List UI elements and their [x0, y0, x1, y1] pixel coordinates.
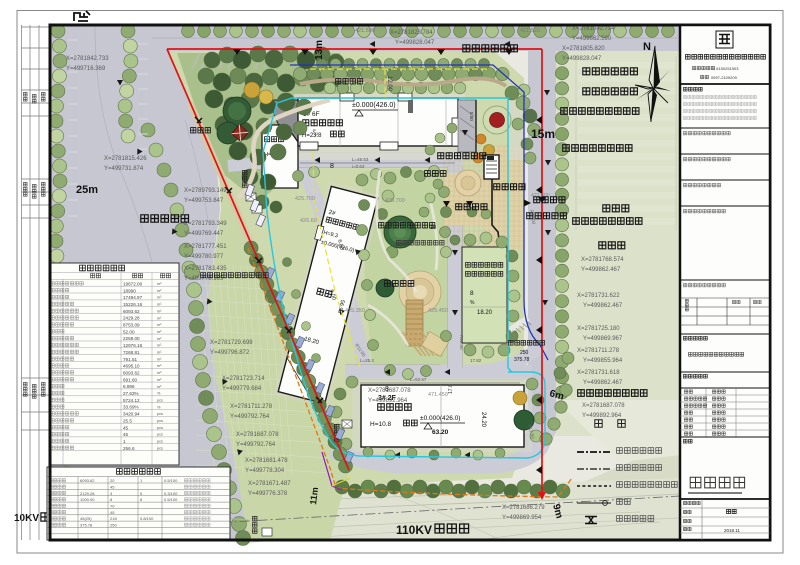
svg-text:L=52.57: L=52.57 — [410, 377, 427, 382]
svg-text:m²: m² — [157, 303, 162, 307]
svg-text:X=2781711.278: X=2781711.278 — [577, 348, 620, 354]
svg-text:m²: m² — [157, 385, 162, 389]
svg-text:X=2781815.426: X=2781815.426 — [104, 156, 147, 162]
svg-text:18990: 18990 — [123, 288, 136, 293]
svg-text:471.450: 471.450 — [428, 392, 448, 398]
svg-text:0.5/100: 0.5/100 — [164, 497, 178, 502]
svg-text:12976.16: 12976.16 — [123, 343, 143, 348]
svg-text:2018.11: 2018.11 — [724, 528, 740, 533]
svg-text:421.500: 421.500 — [355, 28, 375, 34]
svg-text:X=2781723.714: X=2781723.714 — [222, 376, 265, 382]
svg-text:m²: m² — [157, 323, 162, 327]
svg-text:Y=499778.304: Y=499778.304 — [245, 468, 285, 474]
svg-text:791.51: 791.51 — [123, 357, 137, 362]
svg-text:7268.81: 7268.81 — [123, 350, 140, 355]
svg-text:5.00: 5.00 — [469, 112, 474, 121]
svg-text:8: 8 — [470, 290, 474, 297]
svg-text:pcs: pcs — [157, 446, 163, 450]
svg-text:Y=499792.764: Y=499792.764 — [236, 442, 276, 448]
svg-text:2429.28: 2429.28 — [123, 316, 140, 321]
svg-text:N: N — [643, 41, 651, 53]
svg-text:X=2781711.278: X=2781711.278 — [230, 404, 273, 410]
svg-text:Y=499862.467: Y=499862.467 — [583, 303, 623, 309]
svg-text:Y=499780.977: Y=499780.977 — [184, 254, 224, 260]
svg-text:Y=499862.467: Y=499862.467 — [581, 267, 621, 273]
svg-text:L=46.53: L=46.53 — [352, 157, 369, 162]
svg-text:2258.00: 2258.00 — [123, 336, 140, 341]
svg-text:pcs: pcs — [157, 412, 163, 416]
svg-text:m²: m² — [157, 296, 162, 300]
svg-text:m²: m² — [157, 371, 162, 375]
svg-text:Y=499862.467: Y=499862.467 — [583, 380, 623, 386]
svg-text:15m: 15m — [531, 127, 555, 141]
svg-text:8: 8 — [385, 386, 389, 393]
svg-text:15226.16: 15226.16 — [123, 302, 143, 307]
svg-text:27.63%: 27.63% — [123, 391, 139, 396]
svg-text:6093.62: 6093.62 — [123, 370, 140, 375]
svg-text:12.00: 12.00 — [386, 76, 392, 92]
svg-text:17.0: 17.0 — [448, 384, 454, 394]
svg-text:425.350: 425.350 — [345, 308, 365, 314]
svg-text:1000.00: 1000.00 — [80, 497, 95, 502]
svg-text:25.5: 25.5 — [123, 418, 132, 423]
svg-text:18.20: 18.20 — [477, 310, 493, 316]
svg-text:m²: m² — [157, 378, 162, 382]
svg-text:X=2781687.078: X=2781687.078 — [582, 403, 625, 409]
svg-text:1: 1 — [123, 439, 126, 444]
svg-text:X=2781687.078: X=2781687.078 — [368, 388, 411, 394]
svg-text:0597-2109209: 0597-2109209 — [711, 75, 738, 80]
svg-text:m²: m² — [157, 282, 162, 286]
svg-text:Y=499828.047: Y=499828.047 — [395, 40, 435, 46]
svg-text:10KV: 10KV — [14, 513, 39, 524]
svg-text:Y=499892.964: Y=499892.964 — [368, 398, 408, 404]
svg-text:8: 8 — [330, 163, 334, 170]
svg-text:pcs: pcs — [157, 426, 163, 430]
svg-text:X=2781783.435: X=2781783.435 — [184, 266, 227, 272]
svg-text:421.520: 421.520 — [520, 28, 540, 34]
svg-text:±0.000(426.0): ±0.000(426.0) — [420, 415, 460, 422]
svg-text:45: 45 — [110, 484, 115, 489]
svg-text:425.450: 425.450 — [428, 308, 448, 314]
svg-text:6093.62: 6093.62 — [80, 478, 95, 483]
svg-text:426.60: 426.60 — [300, 218, 317, 224]
svg-text:218: 218 — [110, 516, 117, 521]
svg-text:Y=499776.378: Y=499776.378 — [248, 491, 288, 497]
svg-text:m²: m² — [157, 316, 162, 320]
svg-text:0.3/100: 0.3/100 — [164, 491, 178, 496]
svg-text:10: 10 — [430, 225, 436, 231]
svg-text:Y=499731.874: Y=499731.874 — [104, 166, 144, 172]
svg-text:13m: 13m — [314, 40, 325, 60]
svg-text:Y=499862.590: Y=499862.590 — [572, 36, 612, 42]
svg-text:17.82: 17.82 — [470, 358, 482, 363]
svg-text:0.5/100: 0.5/100 — [164, 478, 178, 483]
svg-text:%: % — [470, 300, 475, 306]
svg-text:110KV: 110KV — [396, 523, 432, 537]
svg-text:Y=499778.165: Y=499778.165 — [184, 276, 224, 282]
svg-text:Y=499769.447: Y=499769.447 — [184, 231, 224, 237]
svg-text:X=2781823.784: X=2781823.784 — [390, 30, 433, 36]
svg-text:256.6: 256.6 — [123, 446, 135, 451]
svg-text:pcs: pcs — [157, 419, 163, 423]
svg-text:425.700: 425.700 — [385, 198, 405, 204]
svg-text:X=2781842.733: X=2781842.733 — [66, 56, 109, 62]
svg-text:4695.10: 4695.10 — [123, 364, 140, 369]
svg-text:45: 45 — [110, 510, 115, 515]
svg-text:i=0.64: i=0.64 — [352, 164, 365, 169]
svg-text:24.20: 24.20 — [480, 412, 486, 428]
svg-text:45(25): 45(25) — [80, 516, 92, 521]
svg-text:X=2781777.451: X=2781777.451 — [184, 244, 227, 250]
svg-text:X=2781729.698: X=2781729.698 — [210, 340, 253, 346]
svg-text:Y=499792.764: Y=499792.764 — [230, 414, 270, 420]
svg-text:8753.09: 8753.09 — [123, 323, 140, 328]
svg-text:L=25.2: L=25.2 — [360, 358, 374, 363]
svg-text:m²: m² — [157, 330, 162, 334]
svg-text:X=2781686.279: X=2781686.279 — [502, 505, 545, 511]
svg-text:19672.00: 19672.00 — [123, 281, 143, 286]
svg-text:X=2781731.622: X=2781731.622 — [577, 293, 620, 299]
svg-text:375.78: 375.78 — [80, 523, 93, 528]
svg-text:X=2789793.149: X=2789793.149 — [184, 188, 227, 194]
svg-text:45: 45 — [123, 432, 129, 437]
svg-text:691.60: 691.60 — [123, 377, 137, 382]
svg-text:Y=499796.872: Y=499796.872 — [210, 350, 250, 356]
svg-text:X=2781687.078: X=2781687.078 — [236, 432, 279, 438]
svg-text:6.896: 6.896 — [123, 384, 135, 389]
svg-text:Y=499779.684: Y=499779.684 — [222, 386, 262, 392]
svg-text:m²: m² — [157, 289, 162, 293]
svg-text:R12.00: R12.00 — [459, 335, 464, 350]
svg-text:pcs: pcs — [157, 398, 163, 402]
svg-text:250: 250 — [110, 523, 117, 528]
svg-text:Y=499869.967: Y=499869.967 — [583, 336, 623, 342]
svg-text:3420.94: 3420.94 — [123, 412, 140, 417]
svg-text:m²: m² — [157, 344, 162, 348]
svg-text:6093.62: 6093.62 — [123, 309, 140, 314]
svg-text:±0.000(426.0): ±0.000(426.0) — [352, 102, 396, 109]
svg-text:52.00: 52.00 — [123, 329, 135, 334]
svg-text:45: 45 — [123, 425, 129, 430]
svg-text:: 6150251903: : 6150251903 — [714, 66, 739, 71]
svg-text:25m: 25m — [76, 184, 98, 196]
svg-text:63.20: 63.20 — [432, 429, 449, 436]
svg-text:Y=499828.047: Y=499828.047 — [562, 56, 602, 62]
svg-text:X=2781681.478: X=2781681.478 — [245, 458, 288, 464]
svg-text:425.700: 425.700 — [295, 196, 315, 202]
svg-text:375.78: 375.78 — [514, 357, 530, 363]
svg-text:X=2781725.180: X=2781725.180 — [577, 326, 620, 332]
svg-text:Y=499753.847: Y=499753.847 — [184, 198, 224, 204]
svg-text:X=2781768.574: X=2781768.574 — [581, 257, 624, 263]
svg-text:H=10.8: H=10.8 — [370, 421, 392, 428]
svg-text:pcs: pcs — [157, 433, 163, 437]
svg-text:11m: 11m — [308, 487, 320, 506]
svg-text:m²: m² — [157, 337, 162, 341]
svg-text:X=2781805.820: X=2781805.820 — [562, 46, 605, 52]
svg-text:m²: m² — [157, 351, 162, 355]
svg-text:X=2781793.349: X=2781793.349 — [184, 221, 227, 227]
svg-text:70: 70 — [110, 504, 115, 509]
svg-text:X=2781671.487: X=2781671.487 — [248, 481, 291, 487]
svg-text:250: 250 — [520, 350, 529, 356]
svg-text:X=2781842.734: X=2781842.734 — [572, 26, 615, 32]
svg-text:33.69%: 33.69% — [123, 405, 139, 410]
svg-text:20: 20 — [110, 478, 115, 483]
svg-text:m²: m² — [157, 364, 162, 368]
svg-text:Y=499869.954: Y=499869.954 — [502, 515, 542, 521]
svg-text:5724.12: 5724.12 — [123, 398, 140, 403]
svg-text:Y=499892.964: Y=499892.964 — [582, 413, 622, 419]
svg-text:pcs: pcs — [157, 440, 163, 444]
svg-text:0.8/100: 0.8/100 — [140, 516, 154, 521]
svg-text:17494.97: 17494.97 — [123, 295, 143, 300]
svg-text:X=2781731.618: X=2781731.618 — [577, 370, 620, 376]
svg-text:Y=499855.964: Y=499855.964 — [583, 358, 623, 364]
svg-text:2129.28: 2129.28 — [80, 491, 95, 496]
svg-text:m²: m² — [157, 309, 162, 313]
svg-text:m²: m² — [157, 357, 162, 361]
svg-text:Y=499716.369: Y=499716.369 — [66, 66, 106, 72]
